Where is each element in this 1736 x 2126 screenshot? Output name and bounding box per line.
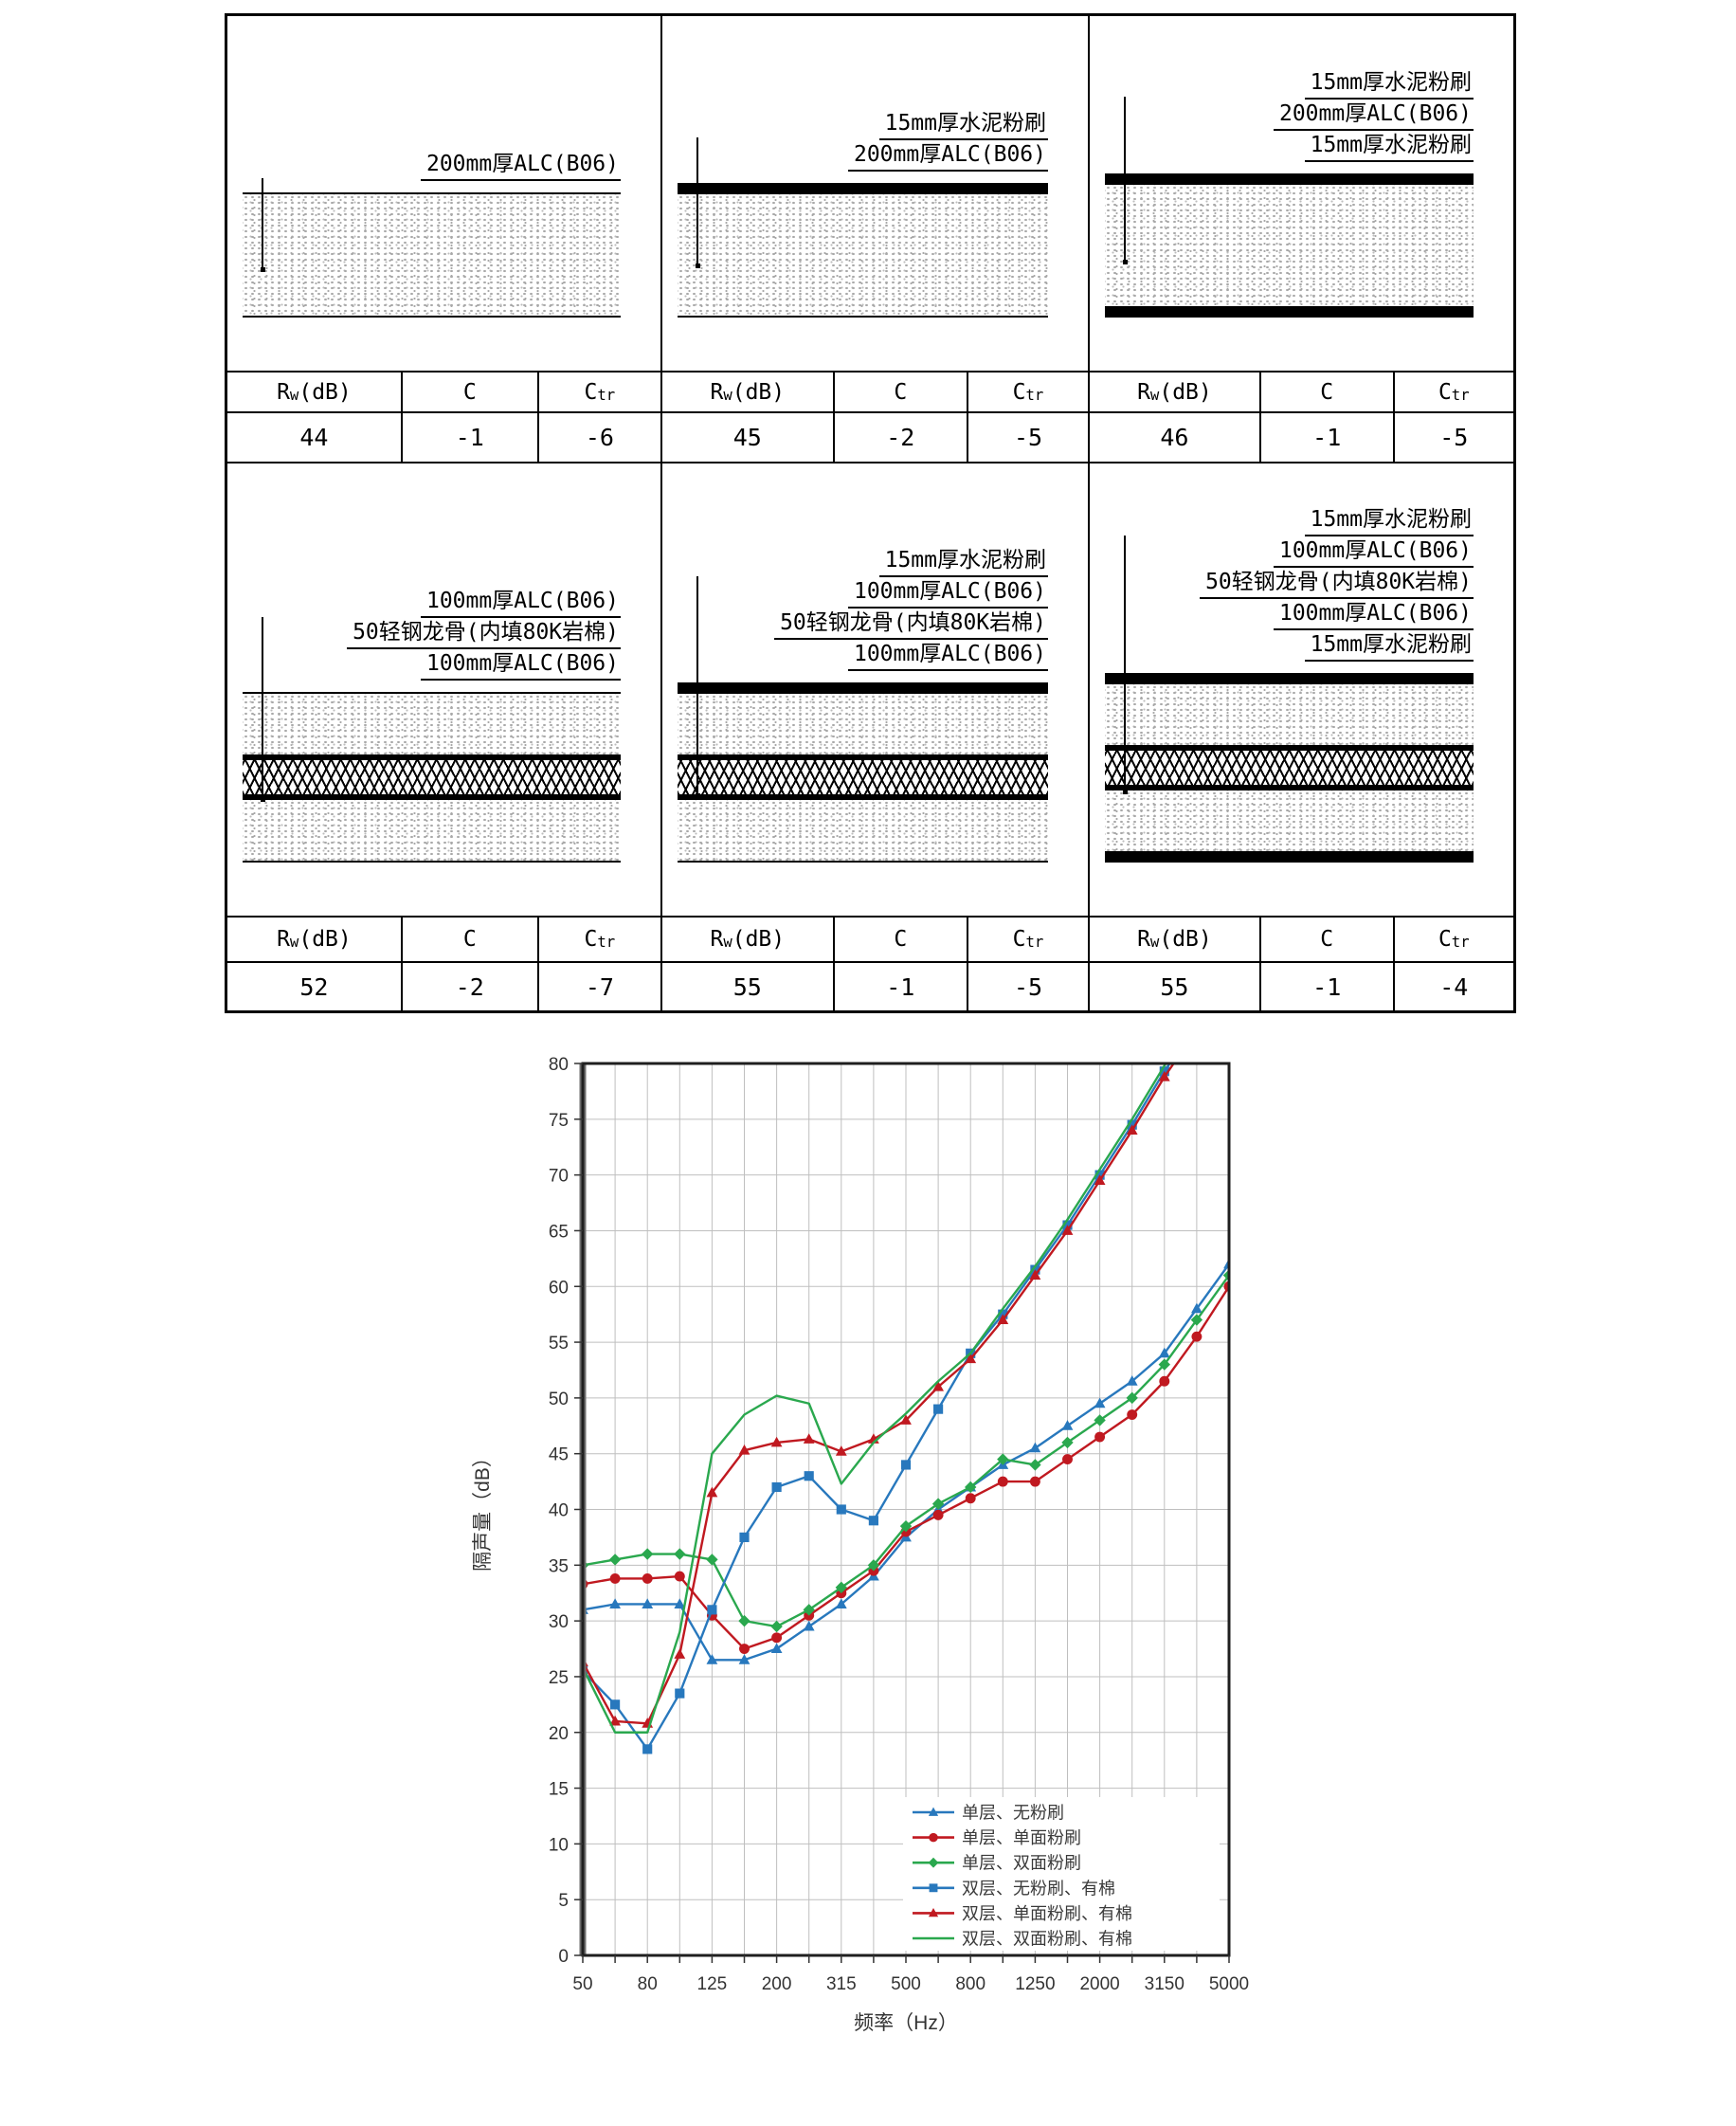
rw-value: 55 xyxy=(662,963,833,1010)
x-tick-label: 500 xyxy=(891,1974,921,1994)
layer-plaster xyxy=(678,682,1048,692)
ratings-value-row: 55-1-4 xyxy=(1088,961,1513,1010)
construction-diagram-3: 15mm厚水泥粉刷200mm厚ALC(B06)15mm厚水泥粉刷 xyxy=(1088,16,1513,371)
layer-label: 100mm厚ALC(B06) xyxy=(678,640,1048,671)
c-header: C xyxy=(401,373,537,411)
layer-label: 100mm厚ALC(B06) xyxy=(1105,599,1474,630)
ratings-header-row: Rw(dB)CCtr xyxy=(1088,916,1513,961)
series-6 xyxy=(583,1024,1197,1733)
ctr-header: Ctr xyxy=(1393,918,1513,961)
layer-alc xyxy=(678,692,1048,756)
ratings-value-row: 45-2-5 xyxy=(660,411,1088,462)
y-tick-label: 65 xyxy=(549,1222,569,1242)
legend-label: 单层、无粉刷 xyxy=(962,1804,1064,1823)
ctr-header: Ctr xyxy=(967,918,1088,961)
ctr-header: Ctr xyxy=(537,373,660,411)
ctr-value: -4 xyxy=(1393,963,1513,1010)
y-tick-label: 50 xyxy=(549,1390,569,1409)
x-tick-label: 3150 xyxy=(1145,1974,1184,1994)
wall-section-graphic xyxy=(243,692,621,863)
layer-plaster xyxy=(678,183,1048,192)
chart-svg: 0510152025303540455055606570758050801252… xyxy=(398,1024,1327,2104)
rw-value: 45 xyxy=(662,413,833,462)
y-tick-label: 75 xyxy=(549,1111,569,1131)
layer-label: 200mm厚ALC(B06) xyxy=(243,150,621,181)
x-tick-label: 200 xyxy=(762,1974,792,1994)
x-tick-label: 5000 xyxy=(1209,1974,1249,1994)
ctr-header: Ctr xyxy=(1393,373,1513,411)
layer-label: 15mm厚水泥粉刷 xyxy=(1105,505,1474,536)
rw-value: 52 xyxy=(227,963,401,1010)
ctr-value: -5 xyxy=(1393,413,1513,462)
c-value: -1 xyxy=(833,963,967,1010)
legend-label: 双层、无粉刷、有棉 xyxy=(962,1879,1115,1898)
y-tick-label: 60 xyxy=(549,1278,569,1298)
leader-dot xyxy=(696,263,700,268)
leader-line xyxy=(1124,97,1126,263)
ratings-value-row: 52-2-7 xyxy=(227,961,660,1010)
c-header: C xyxy=(1259,918,1393,961)
layer-label: 50轻钢龙骨(内填80K岩棉) xyxy=(1105,568,1474,599)
ctr-value: -6 xyxy=(537,413,660,462)
wall-constructions-table: 200mm厚ALC(B06) 15mm厚水泥粉刷200mm厚ALC(B06) 1… xyxy=(225,13,1516,1013)
rw-value: 44 xyxy=(227,413,401,462)
wall-section-graphic xyxy=(1105,173,1474,318)
layer-label: 15mm厚水泥粉刷 xyxy=(1105,630,1474,662)
c-header: C xyxy=(833,373,967,411)
layer-label: 15mm厚水泥粉刷 xyxy=(678,109,1048,140)
x-tick-label: 50 xyxy=(572,1974,592,1994)
rw-header: Rw(dB) xyxy=(662,373,833,411)
layer-label: 200mm厚ALC(B06) xyxy=(678,140,1048,172)
layer-alc xyxy=(1105,183,1474,308)
wall-section-graphic xyxy=(1105,673,1474,863)
c-value: -1 xyxy=(1259,413,1393,462)
series-5 xyxy=(577,1025,1203,1728)
ctr-header: Ctr xyxy=(537,918,660,961)
x-tick-label: 80 xyxy=(638,1974,658,1994)
y-tick-label: 55 xyxy=(549,1334,569,1354)
layer-label: 15mm厚水泥粉刷 xyxy=(678,546,1048,577)
chart-legend: 单层、无粉刷单层、单面粉刷单层、双面粉刷双层、无粉刷、有棉双层、单面粉刷、有棉双… xyxy=(903,1797,1220,1951)
series-4 xyxy=(578,1024,1202,1753)
y-tick-label: 70 xyxy=(549,1167,569,1187)
document-page: 200mm厚ALC(B06) 15mm厚水泥粉刷200mm厚ALC(B06) 1… xyxy=(0,0,1736,2126)
layer-alc xyxy=(678,798,1048,863)
wall-section-graphic xyxy=(243,192,621,318)
legend-label: 单层、单面粉刷 xyxy=(962,1828,1081,1847)
construction-diagram-1: 200mm厚ALC(B06) xyxy=(227,16,660,371)
ratings-header-row: Rw(dB)CCtr xyxy=(227,916,660,961)
y-tick-label: 40 xyxy=(549,1501,569,1521)
leader-dot xyxy=(1123,260,1128,264)
ratings-value-row: 44-1-6 xyxy=(227,411,660,462)
ctr-header: Ctr xyxy=(967,373,1088,411)
rw-header: Rw(dB) xyxy=(227,918,401,961)
y-tick-label: 20 xyxy=(549,1724,569,1744)
layer-label: 100mm厚ALC(B06) xyxy=(243,587,621,618)
leader-line xyxy=(1124,536,1126,792)
y-tick-label: 30 xyxy=(549,1612,569,1632)
layer-plaster xyxy=(1105,308,1474,318)
layer-wool xyxy=(243,756,621,798)
c-header: C xyxy=(401,918,537,961)
construction-diagram-5: 15mm厚水泥粉刷100mm厚ALC(B06)50轻钢龙骨(内填80K岩棉)10… xyxy=(660,462,1088,916)
rw-header: Rw(dB) xyxy=(227,373,401,411)
ratings-value-row: 55-1-5 xyxy=(660,961,1088,1010)
layer-alc xyxy=(678,192,1048,318)
layer-label: 50轻钢龙骨(内填80K岩棉) xyxy=(678,609,1048,640)
ratings-header-row: Rw(dB)CCtr xyxy=(1088,371,1513,411)
x-tick-label: 315 xyxy=(826,1974,857,1994)
leader-dot xyxy=(696,793,700,798)
c-header: C xyxy=(833,918,967,961)
legend-label: 双层、单面粉刷、有棉 xyxy=(962,1904,1132,1923)
layer-labels: 15mm厚水泥粉刷200mm厚ALC(B06)15mm厚水泥粉刷 xyxy=(1105,68,1474,162)
y-tick-label: 80 xyxy=(549,1055,569,1075)
wall-section-graphic xyxy=(678,682,1048,863)
layer-labels: 15mm厚水泥粉刷100mm厚ALC(B06)50轻钢龙骨(内填80K岩棉)10… xyxy=(678,546,1048,671)
x-tick-label: 2000 xyxy=(1079,1974,1119,1994)
y-axis-title: 隔声量（dB） xyxy=(472,1447,494,1572)
legend-label: 单层、双面粉刷 xyxy=(962,1854,1081,1873)
ctr-value: -5 xyxy=(967,413,1088,462)
c-value: -1 xyxy=(1259,963,1393,1010)
ratings-header-row: Rw(dB)CCtr xyxy=(660,916,1088,961)
rw-header: Rw(dB) xyxy=(1090,373,1259,411)
layer-label: 100mm厚ALC(B06) xyxy=(678,577,1048,609)
ctr-value: -5 xyxy=(967,963,1088,1010)
leader-dot xyxy=(261,797,265,802)
x-tick-label: 800 xyxy=(955,1974,986,1994)
leader-dot xyxy=(261,267,265,272)
y-tick-label: 0 xyxy=(558,1947,569,1967)
layer-wool xyxy=(1105,747,1474,789)
y-tick-label: 15 xyxy=(549,1780,569,1800)
wall-section-graphic xyxy=(678,183,1048,318)
layer-alc xyxy=(1105,682,1474,747)
layer-plaster xyxy=(1105,853,1474,863)
rw-header: Rw(dB) xyxy=(1090,918,1259,961)
layer-labels: 15mm厚水泥粉刷200mm厚ALC(B06) xyxy=(678,109,1048,172)
construction-diagram-6: 15mm厚水泥粉刷100mm厚ALC(B06)50轻钢龙骨(内填80K岩棉)10… xyxy=(1088,462,1513,916)
ctr-value: -7 xyxy=(537,963,660,1010)
y-tick-label: 5 xyxy=(558,1891,569,1911)
y-tick-label: 10 xyxy=(549,1835,569,1855)
layer-alc xyxy=(1105,789,1474,853)
leader-line xyxy=(696,137,698,266)
layer-label: 15mm厚水泥粉刷 xyxy=(1105,131,1474,162)
layer-alc xyxy=(243,192,621,318)
x-tick-label: 125 xyxy=(697,1974,728,1994)
layer-label: 200mm厚ALC(B06) xyxy=(1105,100,1474,131)
y-tick-label: 35 xyxy=(549,1556,569,1576)
leader-line xyxy=(262,178,263,270)
layer-label: 15mm厚水泥粉刷 xyxy=(1105,68,1474,100)
x-axis-title: 频率（Hz） xyxy=(854,2012,958,2034)
layer-alc xyxy=(243,692,621,756)
rw-value: 55 xyxy=(1090,963,1259,1010)
c-value: -1 xyxy=(401,413,537,462)
ratings-header-row: Rw(dB)CCtr xyxy=(660,371,1088,411)
construction-diagram-4: 100mm厚ALC(B06)50轻钢龙骨(内填80K岩棉)100mm厚ALC(B… xyxy=(227,462,660,916)
c-header: C xyxy=(1259,373,1393,411)
rw-header: Rw(dB) xyxy=(662,918,833,961)
c-value: -2 xyxy=(401,963,537,1010)
layer-label: 100mm厚ALC(B06) xyxy=(1105,536,1474,568)
layer-label: 50轻钢龙骨(内填80K岩棉) xyxy=(243,618,621,649)
layer-labels: 15mm厚水泥粉刷100mm厚ALC(B06)50轻钢龙骨(内填80K岩棉)10… xyxy=(1105,505,1474,662)
legend-label: 双层、双面粉刷、有棉 xyxy=(962,1930,1132,1949)
layer-wool xyxy=(678,756,1048,798)
layer-plaster xyxy=(1105,173,1474,183)
leader-line xyxy=(696,576,698,796)
ratings-header-row: Rw(dB)CCtr xyxy=(227,371,660,411)
c-value: -2 xyxy=(833,413,967,462)
construction-diagram-2: 15mm厚水泥粉刷200mm厚ALC(B06) xyxy=(660,16,1088,371)
ratings-value-row: 46-1-5 xyxy=(1088,411,1513,462)
layer-labels: 200mm厚ALC(B06) xyxy=(243,150,621,181)
layer-alc xyxy=(243,798,621,863)
y-tick-label: 45 xyxy=(549,1445,569,1465)
rw-value: 46 xyxy=(1090,413,1259,462)
layer-plaster xyxy=(1105,673,1474,682)
leader-dot xyxy=(1123,790,1128,794)
layer-label: 100mm厚ALC(B06) xyxy=(243,649,621,681)
leader-line xyxy=(262,617,263,800)
layer-labels: 100mm厚ALC(B06)50轻钢龙骨(内填80K岩棉)100mm厚ALC(B… xyxy=(243,587,621,681)
y-tick-label: 25 xyxy=(549,1668,569,1688)
sound-insulation-chart: 0510152025303540455055606570758050801252… xyxy=(398,1024,1327,2104)
x-tick-label: 1250 xyxy=(1015,1974,1055,1994)
